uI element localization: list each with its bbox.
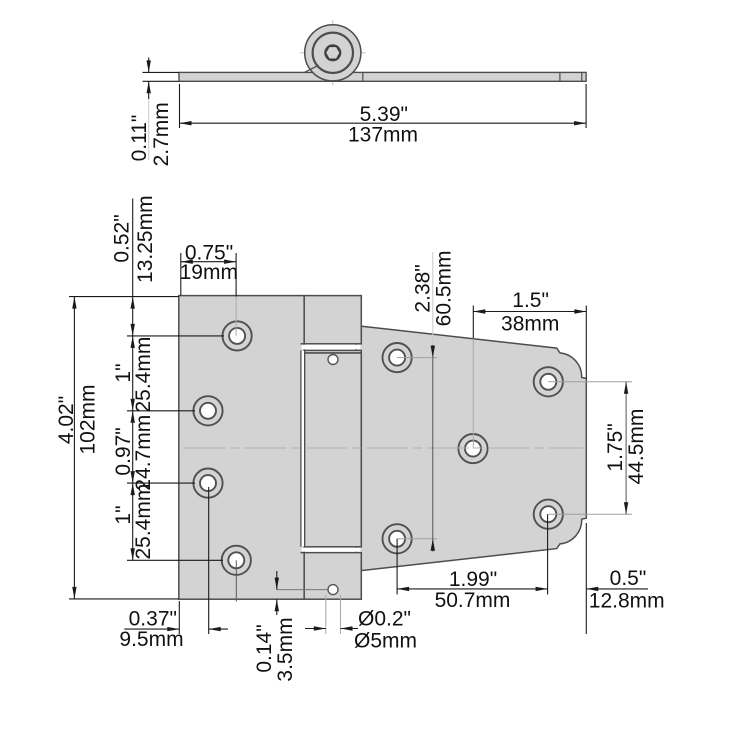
svg-text:4.02": 4.02" (55, 396, 78, 444)
svg-text:1.5": 1.5" (512, 289, 549, 312)
svg-text:12.8mm: 12.8mm (589, 590, 665, 613)
svg-text:44.5mm: 44.5mm (625, 409, 648, 485)
svg-text:13.25mm: 13.25mm (134, 195, 157, 283)
svg-text:9.5mm: 9.5mm (119, 628, 183, 651)
svg-text:3.5mm: 3.5mm (274, 617, 297, 681)
svg-text:0.5": 0.5" (610, 567, 647, 590)
svg-text:137mm: 137mm (348, 124, 418, 147)
svg-text:60.5mm: 60.5mm (432, 250, 455, 326)
svg-text:1.99": 1.99" (449, 568, 497, 591)
svg-text:0.11": 0.11" (128, 115, 151, 162)
svg-text:102mm: 102mm (77, 384, 100, 454)
svg-text:25.4mm: 25.4mm (132, 484, 155, 560)
svg-text:19mm: 19mm (180, 261, 238, 284)
svg-text:Ø5mm: Ø5mm (354, 630, 417, 653)
svg-text:2.7mm: 2.7mm (150, 102, 173, 166)
svg-text:0.52": 0.52" (110, 214, 133, 262)
svg-text:24.7mm: 24.7mm (132, 415, 155, 491)
svg-text:0.14": 0.14" (253, 624, 276, 672)
svg-text:Ø0.2": Ø0.2" (358, 608, 411, 631)
svg-text:50.7mm: 50.7mm (435, 589, 511, 612)
svg-text:2.38": 2.38" (412, 264, 435, 312)
svg-text:38mm: 38mm (501, 313, 559, 336)
svg-text:1.75": 1.75" (604, 423, 627, 471)
svg-text:25.4mm: 25.4mm (132, 337, 155, 413)
